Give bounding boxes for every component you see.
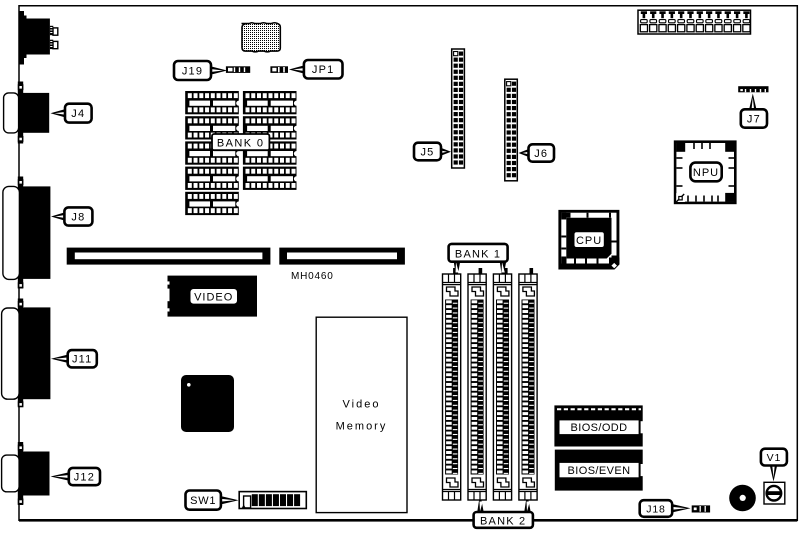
svg-text:J8: J8 bbox=[71, 211, 85, 223]
svg-text:CPU: CPU bbox=[576, 235, 602, 247]
svg-text:BANK 2: BANK 2 bbox=[480, 515, 526, 527]
svg-text:J12: J12 bbox=[74, 472, 95, 484]
svg-text:VIDEO: VIDEO bbox=[194, 291, 233, 303]
svg-text:J19: J19 bbox=[182, 65, 203, 77]
svg-text:J6: J6 bbox=[534, 148, 548, 160]
svg-text:JP1: JP1 bbox=[312, 64, 335, 76]
svg-text:BANK 1: BANK 1 bbox=[455, 248, 501, 260]
svg-text:BIOS/EVEN: BIOS/EVEN bbox=[568, 465, 631, 477]
svg-text:Memory: Memory bbox=[336, 421, 388, 433]
svg-text:BANK 0: BANK 0 bbox=[217, 137, 265, 149]
svg-text:J18: J18 bbox=[646, 503, 665, 515]
svg-text:SW1: SW1 bbox=[190, 495, 216, 507]
svg-text:J7: J7 bbox=[747, 113, 761, 125]
svg-text:MH0460: MH0460 bbox=[291, 271, 334, 282]
svg-text:Video: Video bbox=[343, 399, 381, 411]
svg-text:NPU: NPU bbox=[693, 167, 719, 179]
svg-text:V1: V1 bbox=[767, 452, 781, 464]
svg-text:J4: J4 bbox=[71, 108, 85, 120]
svg-text:BIOS/ODD: BIOS/ODD bbox=[571, 422, 628, 434]
svg-text:J11: J11 bbox=[72, 354, 93, 366]
svg-text:J5: J5 bbox=[420, 146, 434, 158]
